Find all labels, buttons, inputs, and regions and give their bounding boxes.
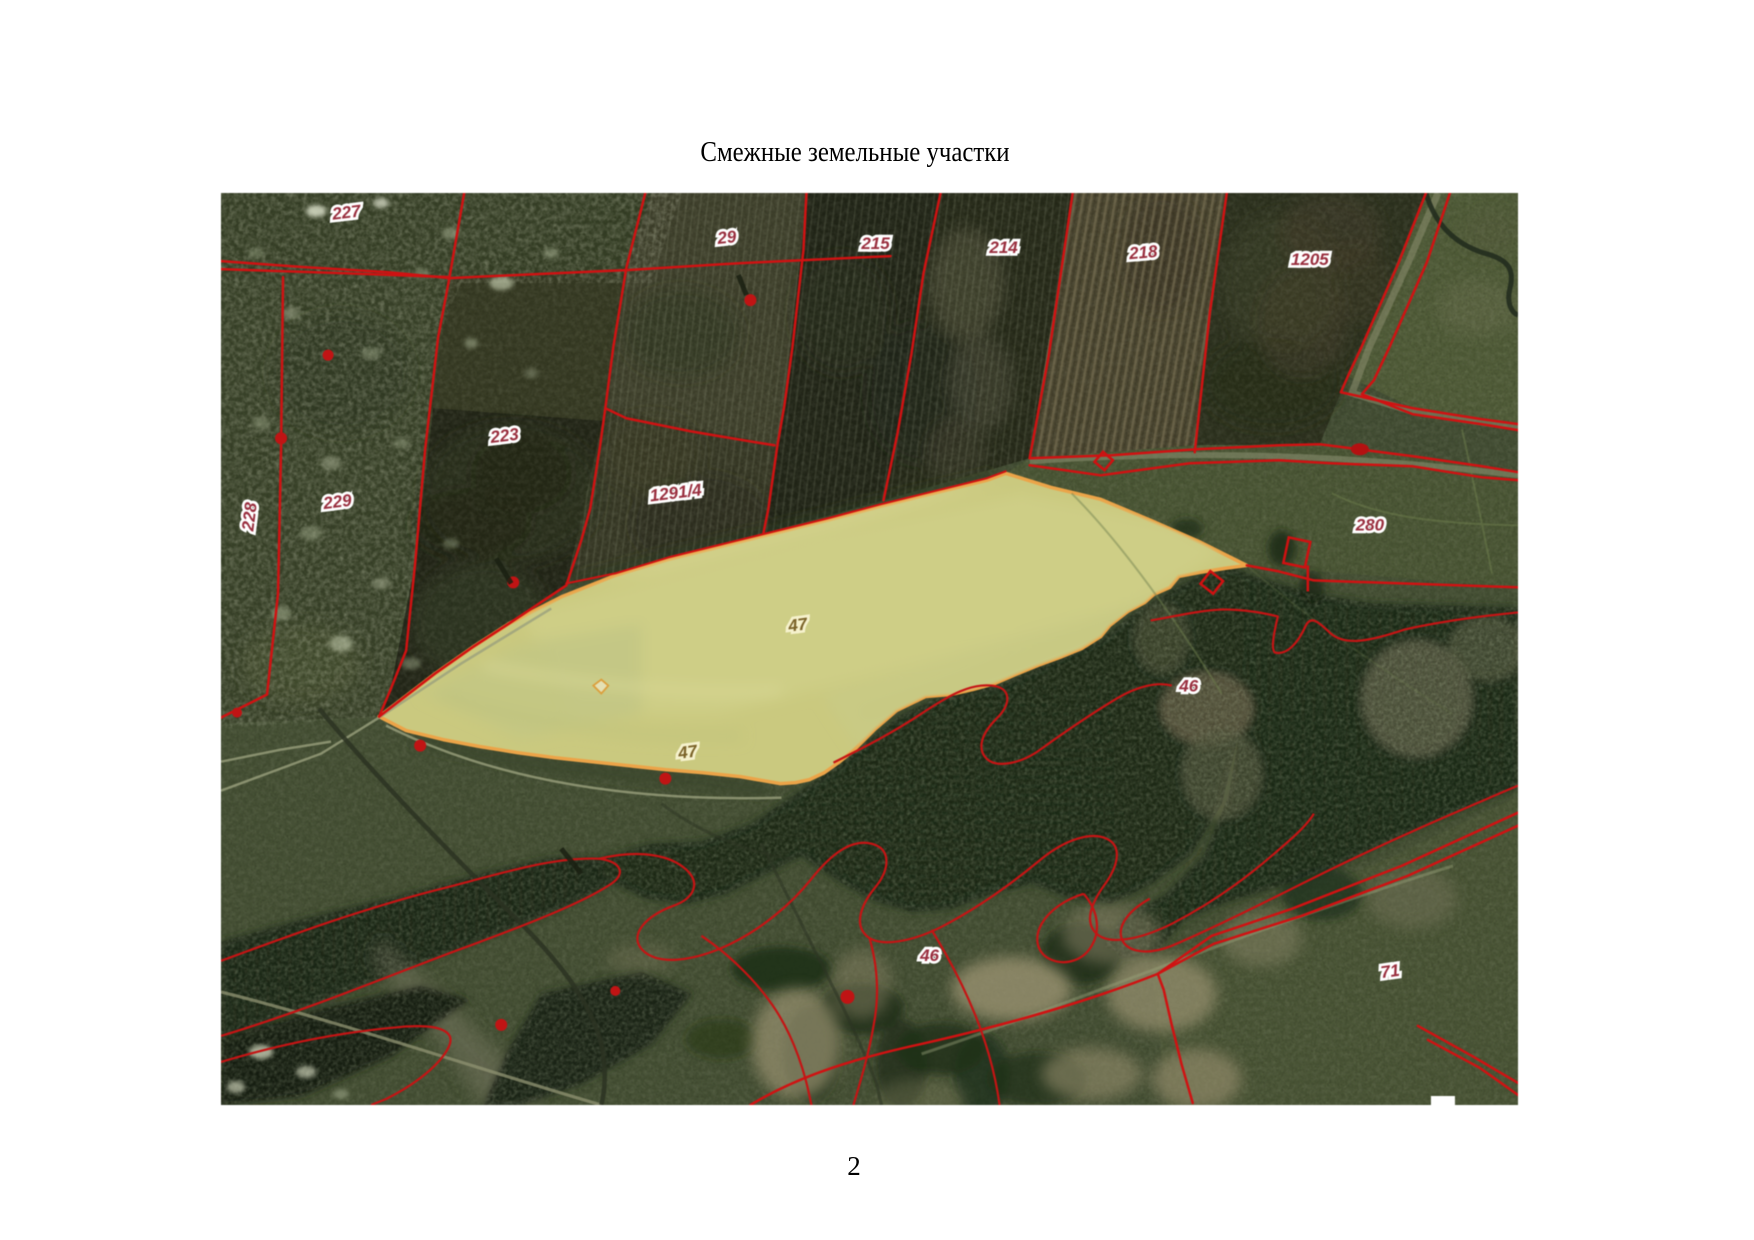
svg-text:228: 228 (238, 501, 260, 533)
svg-text:227: 227 (330, 201, 363, 224)
svg-text:215: 215 (860, 234, 890, 253)
svg-text:1205: 1205 (1291, 250, 1329, 269)
svg-text:229: 229 (321, 491, 353, 514)
svg-text:71: 71 (1379, 961, 1400, 982)
svg-text:280: 280 (1355, 515, 1385, 534)
svg-text:214: 214 (988, 238, 1018, 257)
svg-text:223: 223 (488, 425, 520, 448)
svg-text:29: 29 (715, 227, 737, 248)
svg-text:46: 46 (1178, 677, 1198, 696)
svg-text:46: 46 (919, 946, 939, 965)
svg-text:218: 218 (1127, 242, 1158, 264)
